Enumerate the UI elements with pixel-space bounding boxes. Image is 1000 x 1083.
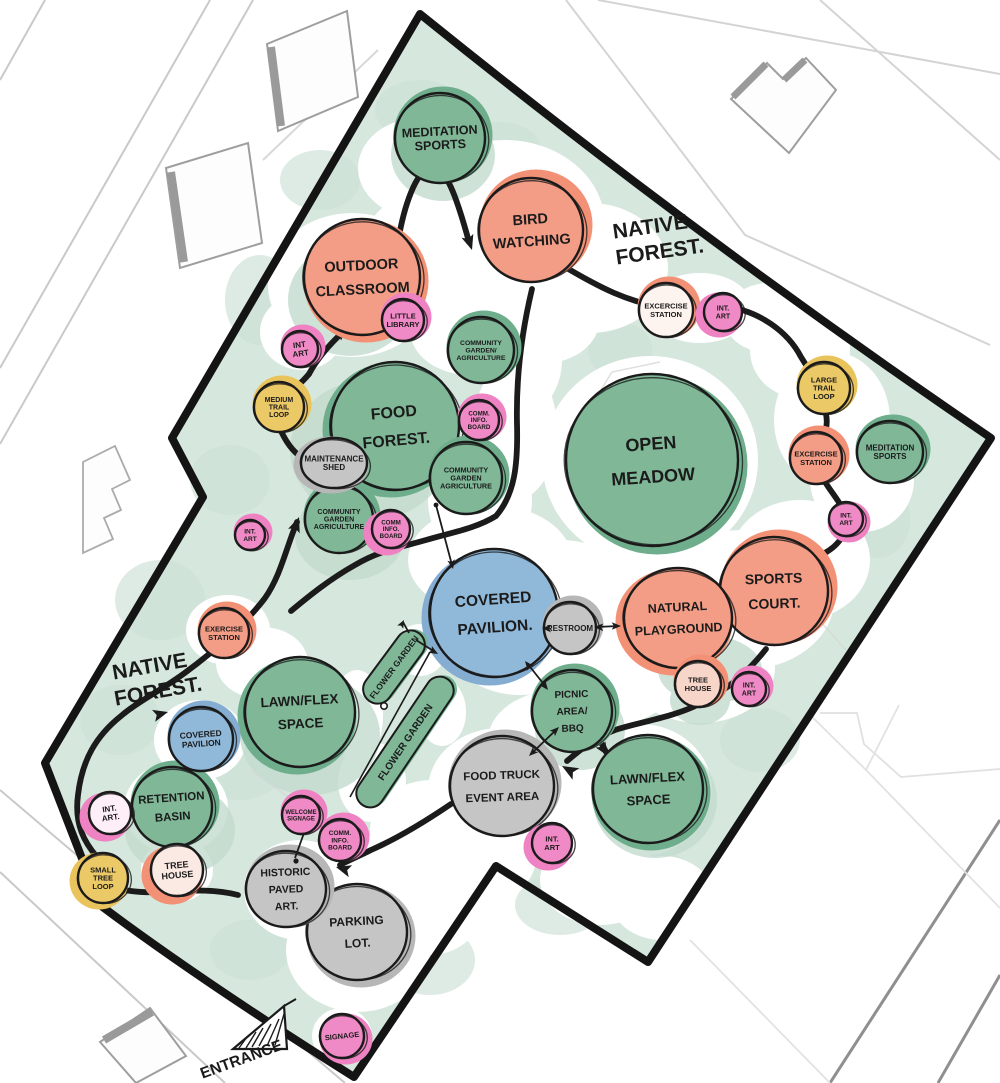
svg-text:LOOP: LOOP — [92, 882, 113, 891]
svg-text:ART.: ART. — [275, 900, 299, 913]
svg-text:GARDEN: GARDEN — [324, 517, 354, 524]
svg-text:MEDITATION: MEDITATION — [866, 443, 915, 452]
svg-text:RESTROOM: RESTROOM — [547, 624, 594, 633]
svg-text:BOARD: BOARD — [468, 424, 491, 431]
svg-text:PAVED: PAVED — [269, 883, 304, 896]
svg-text:LOOP: LOOP — [269, 412, 289, 419]
svg-text:LOOP: LOOP — [813, 392, 834, 401]
svg-text:EVENT AREA: EVENT AREA — [465, 791, 539, 806]
svg-text:PICNIC: PICNIC — [554, 689, 588, 701]
svg-text:COMMUNITY: COMMUNITY — [460, 340, 502, 347]
svg-text:ART: ART — [716, 313, 731, 320]
svg-text:ART: ART — [243, 536, 256, 543]
svg-text:OPEN: OPEN — [625, 432, 677, 456]
svg-text:AGRICULTURE: AGRICULTURE — [457, 355, 506, 362]
svg-text:INT.: INT. — [743, 683, 756, 690]
svg-text:TRAIL: TRAIL — [269, 404, 290, 411]
svg-text:COMMUNITY: COMMUNITY — [317, 509, 360, 516]
svg-text:GARDEN/: GARDEN/ — [465, 347, 496, 354]
svg-text:LIBRARY: LIBRARY — [386, 320, 419, 329]
svg-text:HOUSE: HOUSE — [685, 684, 712, 693]
svg-text:AREA/: AREA/ — [556, 706, 588, 718]
svg-text:BIRD: BIRD — [512, 211, 548, 229]
svg-text:AGRICULTURE: AGRICULTURE — [440, 481, 492, 490]
svg-text:SPACE: SPACE — [277, 715, 323, 732]
svg-text:BBQ: BBQ — [561, 723, 584, 735]
svg-text:BASIN: BASIN — [154, 810, 191, 824]
svg-text:LOT.: LOT. — [344, 936, 371, 951]
svg-text:BOARD: BOARD — [380, 533, 403, 540]
svg-text:MAINTENANCE: MAINTENANCE — [304, 454, 364, 463]
svg-text:MEDIUM: MEDIUM — [265, 397, 294, 404]
svg-text:STATION: STATION — [800, 458, 832, 467]
svg-text:HISTORIC: HISTORIC — [260, 866, 311, 880]
svg-text:COURT.: COURT. — [748, 594, 801, 612]
svg-text:SPORTS: SPORTS — [745, 569, 803, 587]
svg-text:SPACE: SPACE — [626, 791, 671, 808]
svg-text:INT.: INT. — [244, 529, 256, 536]
svg-text:BOARD: BOARD — [328, 844, 352, 851]
svg-text:SPORTS: SPORTS — [414, 137, 466, 154]
svg-text:SHED: SHED — [323, 463, 345, 472]
svg-text:ART: ART — [839, 520, 852, 527]
svg-text:PARKING: PARKING — [329, 913, 384, 930]
svg-text:SIGNAGE: SIGNAGE — [287, 816, 315, 822]
svg-text:AGRICULTURE: AGRICULTURE — [314, 524, 365, 531]
svg-text:INT.: INT. — [717, 306, 730, 313]
svg-text:ART: ART — [544, 843, 560, 852]
svg-text:INFO.: INFO. — [331, 837, 349, 844]
svg-text:ART: ART — [742, 690, 757, 697]
svg-text:COMM.: COMM. — [329, 830, 352, 837]
svg-text:SPORTS: SPORTS — [874, 452, 908, 461]
svg-text:WELCOME: WELCOME — [285, 810, 316, 816]
svg-text:INT.: INT. — [840, 513, 852, 520]
svg-text:STATION: STATION — [208, 633, 240, 642]
svg-text:STATION: STATION — [650, 310, 682, 319]
